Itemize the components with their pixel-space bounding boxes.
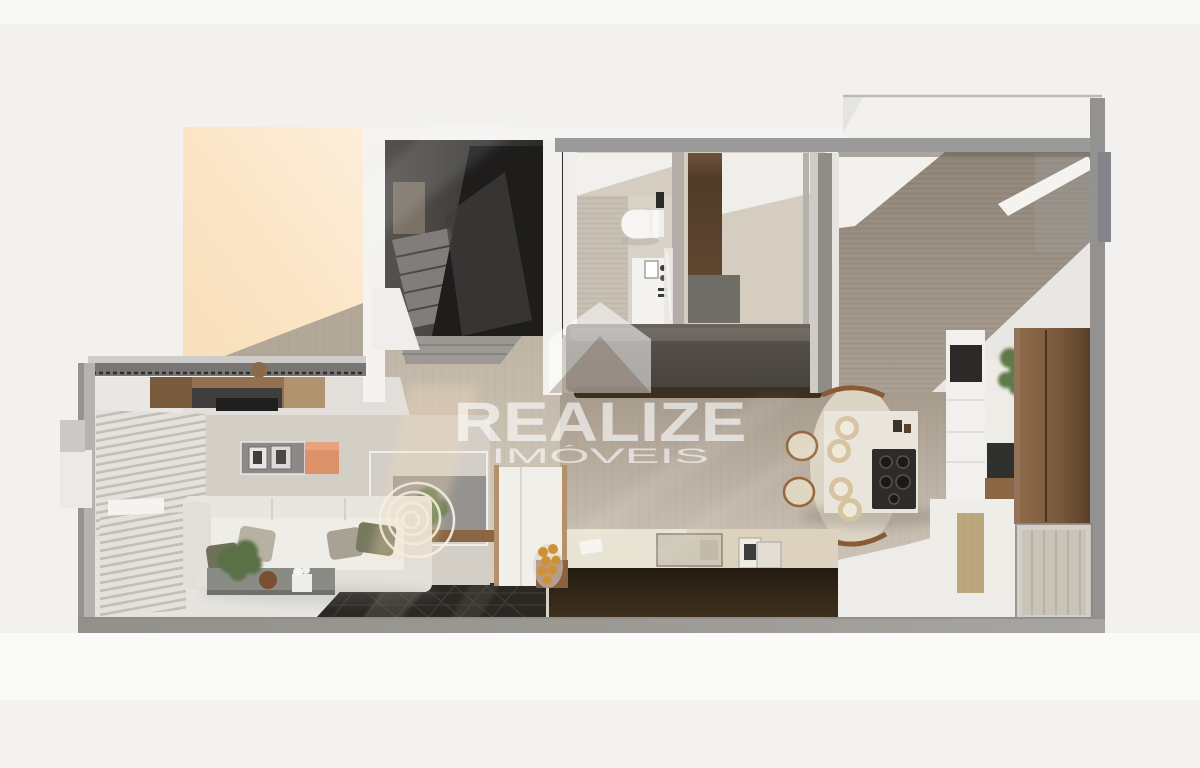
svg-text:REALIZE: REALIZE xyxy=(454,390,747,453)
svg-text:IMÓVEIS: IMÓVEIS xyxy=(491,445,709,468)
